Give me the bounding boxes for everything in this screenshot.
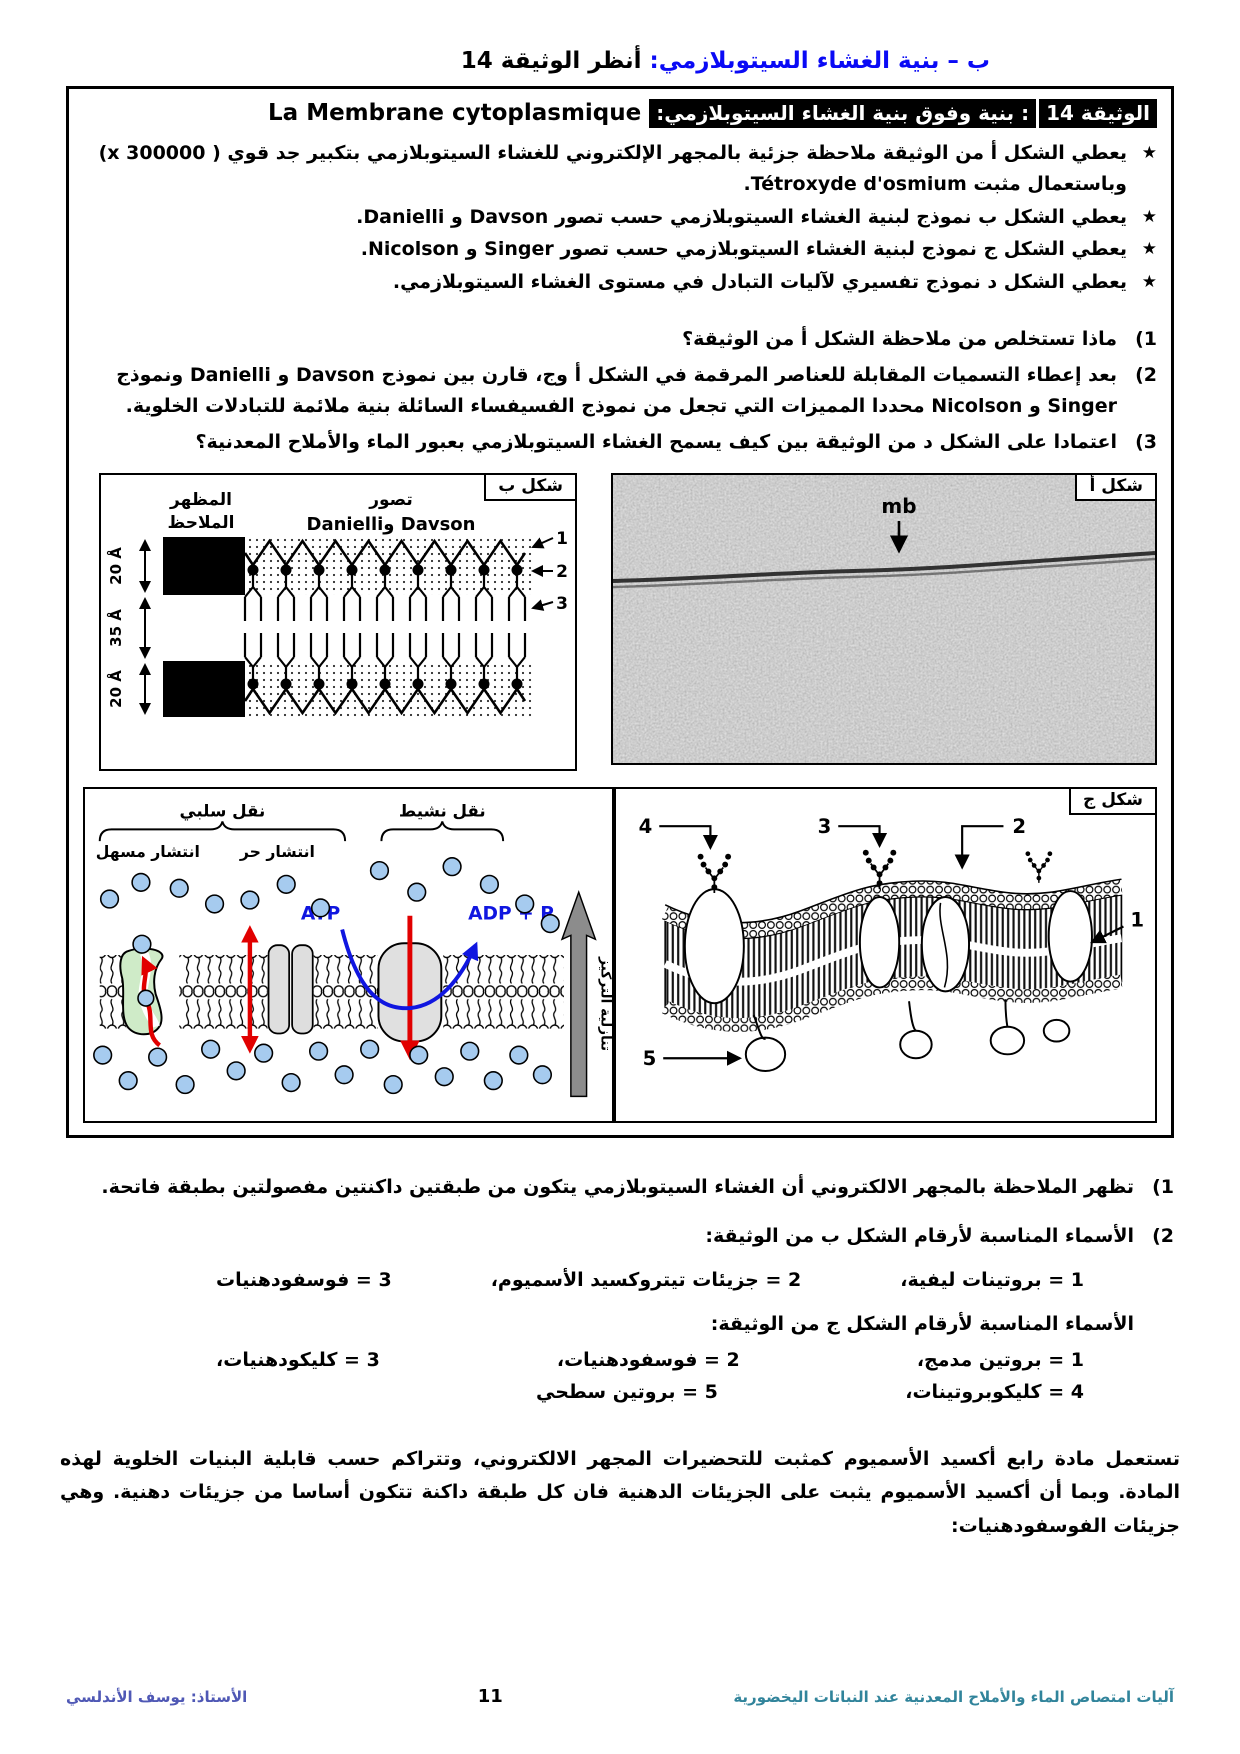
answer-item: 1 = بروتينات ليفية، xyxy=(900,1269,1084,1291)
document-number-chip: الوثيقة 14 xyxy=(1039,99,1157,128)
dimension-label-bottom: 20 Å xyxy=(106,670,125,708)
page-footer: الأستاذ: يوسف الأندلسي 11 آليات امتصاص ا… xyxy=(66,1686,1174,1707)
question-text: بعد إعطاء التسميات المقابلة للعناصر المر… xyxy=(83,360,1117,421)
pointer-4: 4 xyxy=(639,815,653,838)
osmium-dark-band-top xyxy=(247,537,533,595)
answer-item: 2 = جزيئات تيتروكسيد الأسميوم، xyxy=(491,1269,802,1291)
figure-d-box: نقل سلبي نقل نشيط انتشار مسهل انتشار حر xyxy=(83,787,614,1123)
answer-item: 4 = كليكوبروتينات، xyxy=(905,1381,1084,1403)
active-brace xyxy=(381,822,503,842)
question-2: 2)بعد إعطاء التسميات المقابلة للعناصر ال… xyxy=(83,360,1157,421)
free-diffusion-label: انتشار حر xyxy=(239,842,315,861)
bullet-text: يعطي الشكل د نموذج تفسيري لآليات التبادل… xyxy=(393,267,1127,298)
osmium-explanation-paragraph: تستعمل مادة رابع أكسيد الأسميوم كمثبت لل… xyxy=(60,1443,1180,1543)
membrane-transport-figure: نقل سلبي نقل نشيط انتشار مسهل انتشار حر xyxy=(85,789,612,1121)
mb-annotation: mb xyxy=(881,494,916,518)
dimension-label-mid: 35 Å xyxy=(106,609,125,647)
question-text: ماذا تستخلص من ملاحظة الشكل أ من الوثيقة… xyxy=(682,324,1117,354)
question-number: 3) xyxy=(1117,427,1157,457)
question-number: 1) xyxy=(1117,324,1157,354)
bullet-item: ★يعطي الشكل ج نموذج لبنية الغشاء السيتوب… xyxy=(83,234,1157,265)
footer-lesson-title: آليات امتصاص الماء والأملاح المعدنية عند… xyxy=(733,1688,1174,1706)
star-bullet-icon: ★ xyxy=(1127,267,1157,298)
glycolipid-chain xyxy=(1026,852,1053,883)
pointer-3: 3 xyxy=(556,594,568,614)
bullet-item: ★يعطي الشكل ب نموذج لبنية الغشاء السيتوب… xyxy=(83,202,1157,233)
figure-c-naming-intro: الأسماء المناسبة لأرقام الشكل ج من الوثي… xyxy=(66,1313,1174,1335)
membrane-protein-slab xyxy=(292,946,313,1034)
answer-1: 1)تظهر الملاحظة بالمجهر الالكتروني أن ال… xyxy=(66,1172,1174,1202)
answer-text: الأسماء المناسبة لأرقام الشكل ب من الوثي… xyxy=(705,1221,1134,1251)
electron-micrograph-figure: mb xyxy=(613,475,1155,763)
lipid-bilayer xyxy=(100,955,564,1029)
page-title-arabic: ب – بنية الغشاء السيتوبلازمي: xyxy=(650,48,990,74)
bullet-list: ★يعطي الشكل أ من الوثيقة ملاحظة جزئية با… xyxy=(83,138,1157,298)
question-text: اعتمادا على الشكل د من الوثيقة بين كيف ي… xyxy=(195,427,1117,457)
answer-item: 5 = بروتين سطحي xyxy=(536,1381,718,1403)
pointer-1: 1 xyxy=(556,529,568,549)
figure-c-naming-row-2: 4 = كليكوبروتينات، 5 = بروتين سطحي xyxy=(66,1371,1174,1403)
dimension-label-top: 20 Å xyxy=(106,547,125,585)
document-14-box: الوثيقة 14: بنية وفوق بنية الغشاء السيتو… xyxy=(66,86,1174,1138)
question-list: 1)ماذا تستخلص من ملاحظة الشكل أ من الوثي… xyxy=(83,324,1157,458)
davson-danielli-model-figure: المظهر الملاحظ تصور Davson وDanielli xyxy=(101,475,575,769)
pointer-3: 3 xyxy=(818,815,832,838)
answer-item: 1 = بروتين مدمج، xyxy=(917,1349,1084,1371)
bullet-item: ★يعطي الشكل أ من الوثيقة ملاحظة جزئية با… xyxy=(83,138,1157,200)
figure-a-box: شكل أ xyxy=(611,473,1157,765)
answer-number: 2) xyxy=(1134,1221,1174,1251)
passive-brace xyxy=(100,822,345,842)
glycoprotein-chain xyxy=(698,854,731,893)
footer-page-number: 11 xyxy=(478,1686,503,1707)
figure-row-2: نقل سلبي نقل نشيط انتشار مسهل انتشار حر xyxy=(83,787,1157,1123)
bullet-text: يعطي الشكل ب نموذج لبنية الغشاء السيتوبل… xyxy=(356,202,1127,233)
active-transport-label: نقل نشيط xyxy=(399,802,486,821)
french-title: La Membrane cytoplasmique xyxy=(268,100,641,126)
page-title: ب – بنية الغشاء السيتوبلازمي: أنظر الوثي… xyxy=(0,0,1240,86)
model-authors-header: Davson وDanielli xyxy=(307,514,476,535)
figure-c-label: شكل ج xyxy=(1069,787,1157,815)
answer-item: 3 = كليكودهنيات، xyxy=(216,1349,380,1371)
bullet-item: ★يعطي الشكل د نموذج تفسيري لآليات التباد… xyxy=(83,267,1157,298)
star-bullet-icon: ★ xyxy=(1127,234,1157,265)
star-bullet-icon: ★ xyxy=(1127,138,1157,200)
concentration-gradient-arrow xyxy=(562,893,595,1097)
answer-number: 1) xyxy=(1134,1172,1174,1202)
pointer-2: 2 xyxy=(1012,815,1026,838)
answers-section: 1)تظهر الملاحظة بالمجهر الالكتروني أن ال… xyxy=(66,1172,1174,1403)
figure-b-box: شكل ب الم xyxy=(99,473,577,771)
question-3: 3)اعتمادا على الشكل د من الوثيقة بين كيف… xyxy=(83,427,1157,457)
observed-appearance-header-2: الملاحظ xyxy=(168,513,235,533)
question-number: 2) xyxy=(1117,360,1157,421)
figure-row-1: شكل ب الم xyxy=(83,473,1157,771)
observed-dark-layer-bottom xyxy=(163,661,245,717)
document-page: ب – بنية الغشاء السيتوبلازمي: أنظر الوثي… xyxy=(0,0,1240,1754)
footer-teacher: الأستاذ: يوسف الأندلسي xyxy=(66,1688,247,1706)
question-1: 1)ماذا تستخلص من ملاحظة الشكل أ من الوثي… xyxy=(83,324,1157,354)
star-bullet-icon: ★ xyxy=(1127,202,1157,233)
facilitated-diffusion-label: انتشار مسهل xyxy=(96,842,200,861)
bullet-text: يعطي الشكل أ من الوثيقة ملاحظة جزئية بال… xyxy=(83,138,1127,200)
figure-b-label: شكل ب xyxy=(484,473,577,501)
passive-transport-label: نقل سلبي xyxy=(180,802,266,822)
pointer-arrows xyxy=(533,538,553,608)
figure-b-naming-row: 1 = بروتينات ليفية، 2 = جزيئات تيتروكسيد… xyxy=(66,1255,1174,1291)
pointer-2: 2 xyxy=(556,562,568,582)
document-header: الوثيقة 14: بنية وفوق بنية الغشاء السيتو… xyxy=(83,99,1157,128)
answer-item: 2 = فوسفودهنيات، xyxy=(557,1349,740,1371)
pointer-5: 5 xyxy=(643,1048,657,1071)
pointer-1: 1 xyxy=(1130,909,1144,932)
figure-a-label: شكل أ xyxy=(1075,473,1157,501)
gradient-label: تنازلية التركيز xyxy=(597,957,612,1052)
osmium-dark-band-bottom xyxy=(247,661,533,717)
fluid-mosaic-model-figure: 4 3 2 1 5 xyxy=(616,789,1155,1121)
answer-text: تظهر الملاحظة بالمجهر الالكتروني أن الغش… xyxy=(101,1172,1134,1202)
figure-c-box: شكل ج xyxy=(614,787,1157,1123)
observed-dark-layer-top xyxy=(163,537,245,595)
model-header: تصور xyxy=(368,490,413,510)
answer-item: 3 = فوسفودهنيات xyxy=(216,1269,392,1291)
membrane-protein-slab xyxy=(269,946,290,1034)
bullet-text: يعطي الشكل ج نموذج لبنية الغشاء السيتوبل… xyxy=(361,234,1127,265)
answer-2-intro: 2)الأسماء المناسبة لأرقام الشكل ب من الو… xyxy=(66,1221,1174,1251)
observed-appearance-header-1: المظهر xyxy=(169,490,232,510)
page-title-reference: أنظر الوثيقة 14 xyxy=(461,48,650,74)
em-grain-texture xyxy=(613,475,1155,763)
document-subtitle-chip: : بنية وفوق بنية الغشاء السيتوبلازمي: xyxy=(649,99,1036,128)
figure-c-naming-row-1: 1 = بروتين مدمج، 2 = فوسفودهنيات، 3 = كل… xyxy=(66,1335,1174,1371)
